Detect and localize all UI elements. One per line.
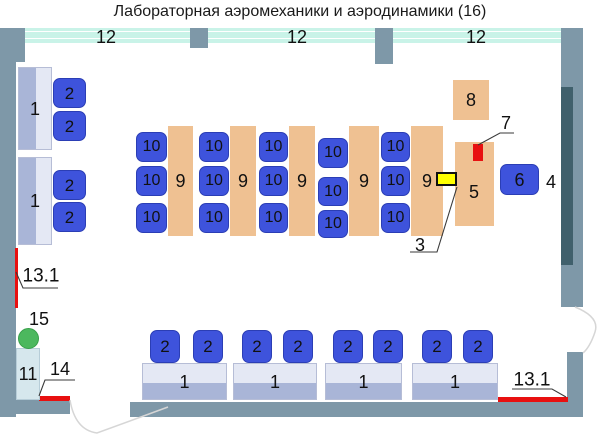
chair-2: 2 bbox=[373, 330, 403, 363]
page-title: Лабораторная аэромеханики и аэродинамики… bbox=[0, 3, 600, 21]
student-desk-1: 1 bbox=[412, 363, 498, 400]
floor-plan: Лабораторная аэромеханики и аэродинамики… bbox=[0, 0, 600, 442]
red-marked-line-13-1-right bbox=[498, 397, 568, 402]
student-desk-1: 1 bbox=[233, 363, 317, 400]
chair-2: 2 bbox=[53, 78, 86, 108]
desk-1-left-b: 1 bbox=[18, 157, 52, 245]
label-5: 5 bbox=[469, 183, 479, 201]
window-label-12: 12 bbox=[96, 28, 116, 46]
stool-10: 10 bbox=[381, 203, 410, 233]
stool-10: 10 bbox=[136, 132, 167, 162]
label-13-1-left: 13.1 bbox=[23, 267, 60, 286]
stool-10: 10 bbox=[318, 177, 348, 206]
red-marked-line-14 bbox=[39, 396, 70, 401]
lab-bench-9: 9 bbox=[168, 126, 193, 236]
label-13-1-right: 13.1 bbox=[514, 371, 551, 390]
chair-2: 2 bbox=[53, 111, 86, 141]
stool-10: 10 bbox=[259, 132, 288, 162]
device-3 bbox=[436, 172, 457, 186]
chair-2: 2 bbox=[463, 330, 493, 363]
wall-left bbox=[0, 28, 16, 417]
wall-board-4 bbox=[561, 87, 573, 265]
stool-10: 10 bbox=[259, 166, 288, 196]
label-7: 7 bbox=[501, 114, 511, 132]
stool-10: 10 bbox=[381, 166, 410, 196]
marker-15 bbox=[18, 328, 39, 349]
stool-10: 10 bbox=[318, 210, 348, 238]
student-desk-1: 1 bbox=[142, 363, 227, 400]
stool-10: 10 bbox=[318, 138, 348, 168]
stool-10: 10 bbox=[199, 132, 229, 162]
chair-2: 2 bbox=[53, 170, 86, 200]
chair-2: 2 bbox=[53, 202, 86, 232]
cabinet-8: 8 bbox=[453, 80, 489, 120]
chair-2: 2 bbox=[283, 330, 313, 363]
chair-6: 6 bbox=[500, 164, 539, 195]
stool-10: 10 bbox=[136, 166, 167, 196]
label-3: 3 bbox=[415, 236, 425, 254]
chair-2: 2 bbox=[242, 330, 272, 363]
wall-bottom-left bbox=[0, 399, 70, 414]
stool-10: 10 bbox=[381, 132, 410, 162]
device-7 bbox=[473, 144, 483, 161]
desk-1-left-a: 1 bbox=[18, 67, 52, 150]
wall-corner-topleft bbox=[0, 28, 25, 62]
chair-2: 2 bbox=[193, 330, 223, 363]
wall-bottom-right bbox=[130, 402, 583, 417]
stool-10: 10 bbox=[259, 203, 288, 233]
red-marked-line-13-1-left bbox=[15, 248, 18, 308]
student-desk-1: 1 bbox=[325, 363, 402, 400]
chair-2: 2 bbox=[150, 330, 180, 363]
stool-10: 10 bbox=[136, 203, 167, 233]
cabinet-11: 11 bbox=[16, 348, 40, 400]
label-4: 4 bbox=[546, 173, 556, 191]
door-arc-right bbox=[575, 307, 596, 353]
label-14: 14 bbox=[50, 360, 70, 378]
window-label-12: 12 bbox=[466, 28, 486, 46]
lab-bench-9: 9 bbox=[349, 126, 379, 236]
stool-10: 10 bbox=[199, 166, 229, 196]
wall-pillar-top-1 bbox=[190, 28, 208, 48]
chair-2: 2 bbox=[422, 330, 452, 363]
lab-bench-9: 9 bbox=[230, 126, 256, 236]
lab-bench-9: 9 bbox=[289, 126, 315, 236]
label-15: 15 bbox=[29, 310, 49, 328]
stool-10: 10 bbox=[199, 203, 229, 233]
wall-pillar-top-2 bbox=[375, 28, 393, 64]
leader-14 bbox=[39, 380, 75, 396]
window-label-12: 12 bbox=[287, 28, 307, 46]
chair-2: 2 bbox=[333, 330, 363, 363]
